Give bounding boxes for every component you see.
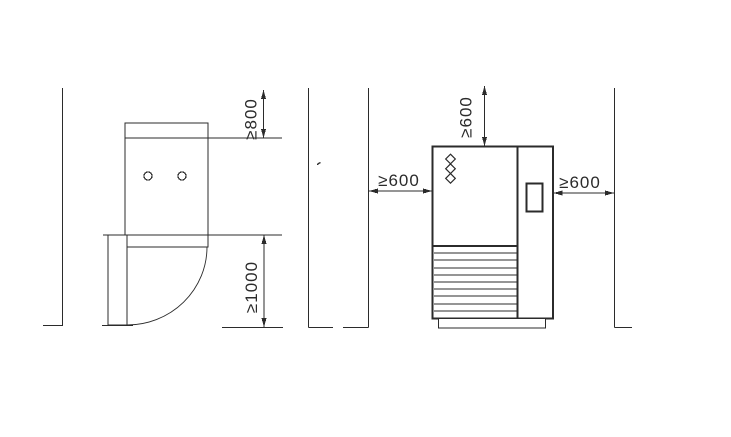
door-leaf [108, 235, 127, 325]
dimension-1000: ≥1000 [222, 235, 283, 328]
right-view: ≥600 ≥600 ≥600 [309, 86, 633, 328]
dimension-1000-label: ≥1000 [242, 261, 261, 313]
display-window [527, 184, 543, 212]
door-swing-arc [127, 247, 207, 325]
arrow-up-icon [261, 90, 266, 99]
dimension-600-right-label: ≥600 [559, 173, 601, 192]
dimension-600-left: ≥600 [369, 171, 433, 194]
arrow-down-icon [261, 318, 266, 327]
stray-tick-mark [317, 163, 321, 165]
dimension-600-top-label: ≥600 [457, 96, 476, 138]
arrow-left-icon [369, 188, 378, 193]
arrow-down-icon [261, 129, 266, 138]
indicator-lights [446, 154, 456, 183]
drawing-page: ≥800 ≥1000 [0, 0, 731, 437]
arrow-right-icon [423, 188, 432, 193]
installation-clearance-diagram: ≥800 ≥1000 [0, 0, 731, 437]
arrow-down-icon [482, 137, 487, 146]
arrow-up-icon [482, 86, 487, 95]
cabinet-base-plinth [439, 319, 546, 329]
dimension-800-label: ≥800 [242, 98, 261, 140]
arrow-right-icon [605, 190, 614, 195]
dimension-800: ≥800 [242, 90, 267, 140]
dimension-600-top: ≥600 [457, 86, 488, 146]
dimension-600-right: ≥600 [553, 173, 614, 196]
arrow-up-icon [261, 235, 266, 244]
dimension-600-left-label: ≥600 [378, 171, 420, 190]
cabinet-outline [125, 123, 208, 247]
left-view: ≥800 ≥1000 [43, 88, 283, 328]
